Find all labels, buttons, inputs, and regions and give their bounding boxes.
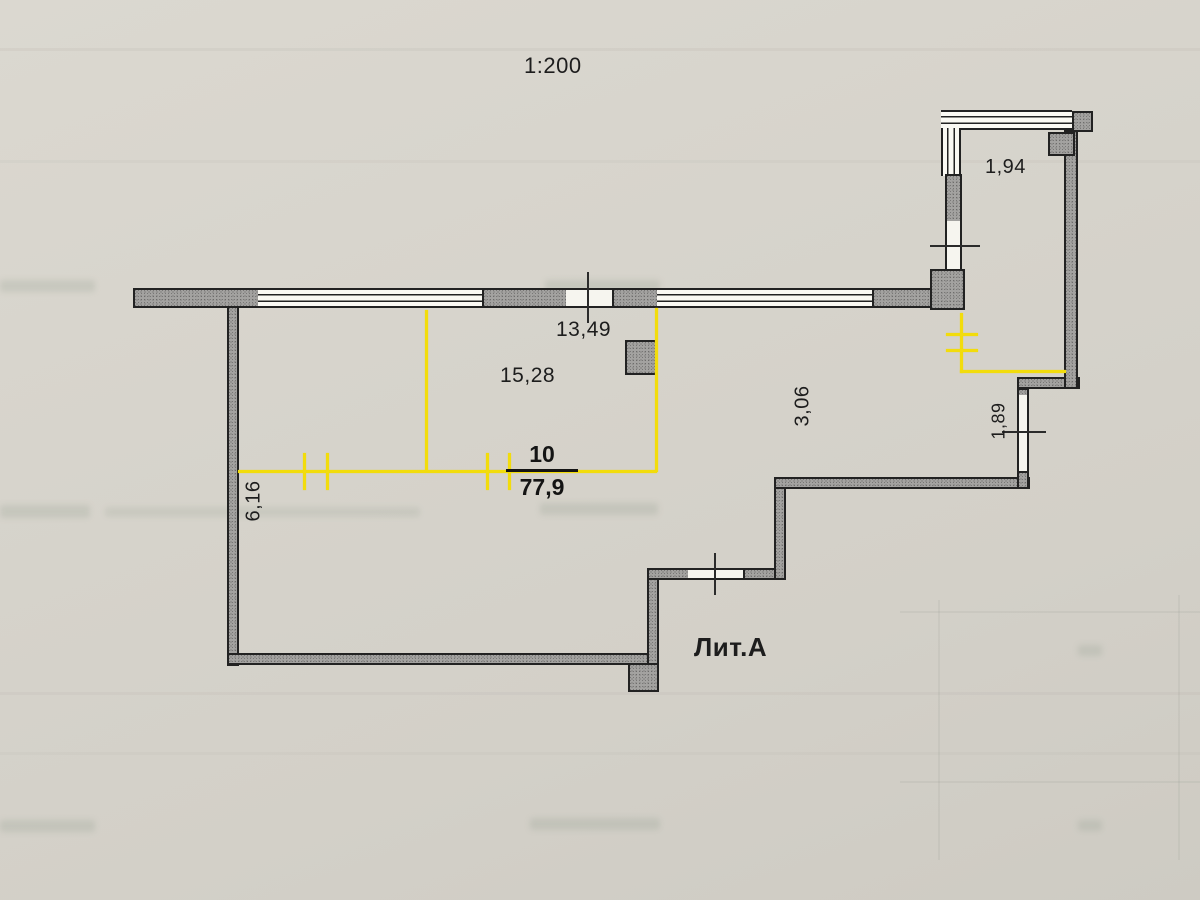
dimension-tick [946, 349, 978, 352]
bleed-through-smudge [0, 505, 90, 518]
paper-crease [0, 752, 1200, 755]
bleed-through-smudge [0, 820, 95, 832]
survey-tick-step-window [714, 553, 716, 595]
window-lower-right [1017, 395, 1029, 473]
wall-balcony-junction [930, 269, 965, 310]
dim-balcony-side-depth: 1,89 [989, 402, 1010, 439]
window-balcony-top [941, 110, 1072, 130]
dimension-line-horizontal-main [238, 470, 657, 473]
bleed-through-gridline [900, 781, 1200, 783]
bleed-through-smudge [1078, 820, 1102, 831]
column [625, 340, 657, 375]
wall-balcony-right-block [1048, 132, 1075, 156]
bleed-through-smudge [540, 503, 658, 515]
bleed-through-gridline [900, 611, 1200, 613]
wall-pier-below-bottom [628, 663, 659, 692]
window-step [688, 568, 745, 580]
window-top-right [657, 288, 874, 308]
wall-top-mid-solid-2 [612, 288, 659, 308]
dimension-line-horizontal-balcony [960, 370, 1066, 373]
room-label: 10 77,9 [506, 441, 578, 501]
survey-tick-top-center [587, 272, 589, 323]
dimension-tick [303, 453, 306, 490]
wall-bottom [227, 653, 659, 665]
bleed-through-smudge [1078, 645, 1102, 656]
dimension-tick [946, 333, 978, 336]
wall-balcony-right [1064, 130, 1078, 389]
paper-crease [0, 48, 1200, 51]
dim-left-wall-height: 6,16 [243, 481, 266, 522]
building-letter-label: Лит.А [694, 632, 767, 663]
bleed-through-smudge [0, 280, 95, 292]
dim-balcony-width: 1,94 [985, 156, 1026, 179]
dimension-line-vertical-right [655, 308, 658, 472]
dimension-line-vertical-mid [425, 310, 428, 471]
bleed-through-smudge [530, 818, 660, 830]
wall-top-mid-solid-1 [482, 288, 568, 308]
wall-balcony-left-solid [945, 174, 962, 223]
wall-step-vertical-2 [774, 477, 786, 580]
dim-top-facade-width: 13,49 [556, 318, 611, 342]
wall-step-vertical-1 [647, 568, 659, 665]
bleed-through-gridline [1178, 595, 1180, 860]
scale-label: 1:200 [524, 53, 582, 79]
wall-step-horizontal-1a [647, 568, 690, 580]
survey-tick-balcony-left-window [930, 245, 980, 247]
floor-plan-scan: 1:200 1,94 13,49 15,28 3,06 1,89 6,16 10… [0, 0, 1200, 900]
dimension-line-vertical-balcony [960, 313, 963, 373]
dim-room-width: 15,28 [500, 364, 555, 388]
dimension-tick [326, 453, 329, 490]
bleed-through-gridline [938, 600, 940, 860]
dimension-tick [486, 453, 489, 490]
wall-top-left-solid [133, 288, 260, 308]
wall-balcony-corner-block [1072, 111, 1093, 132]
wall-lower-right-stub-bottom [1017, 471, 1029, 489]
dim-right-section-depth: 3,06 [792, 386, 815, 427]
window-balcony-left-upper [941, 128, 961, 176]
window-top-left [258, 288, 484, 308]
wall-step-horizontal-2 [774, 477, 1030, 489]
opening-top-center [566, 288, 614, 308]
room-area: 77,9 [506, 472, 578, 501]
room-number: 10 [506, 441, 578, 472]
paper-crease [0, 692, 1200, 695]
wall-left [227, 306, 239, 666]
